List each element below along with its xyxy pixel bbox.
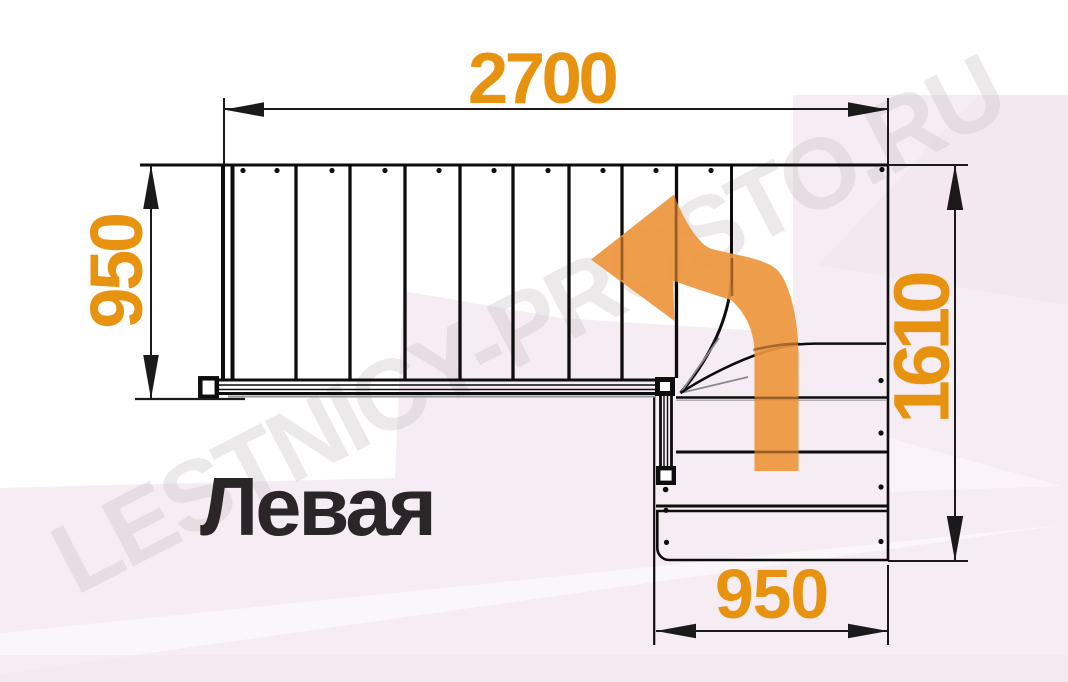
svg-text:950: 950 — [75, 214, 158, 329]
svg-text:Левая: Левая — [200, 460, 434, 553]
svg-text:950: 950 — [715, 555, 828, 633]
svg-text:1610: 1610 — [878, 273, 966, 424]
svg-text:2700: 2700 — [468, 38, 616, 119]
